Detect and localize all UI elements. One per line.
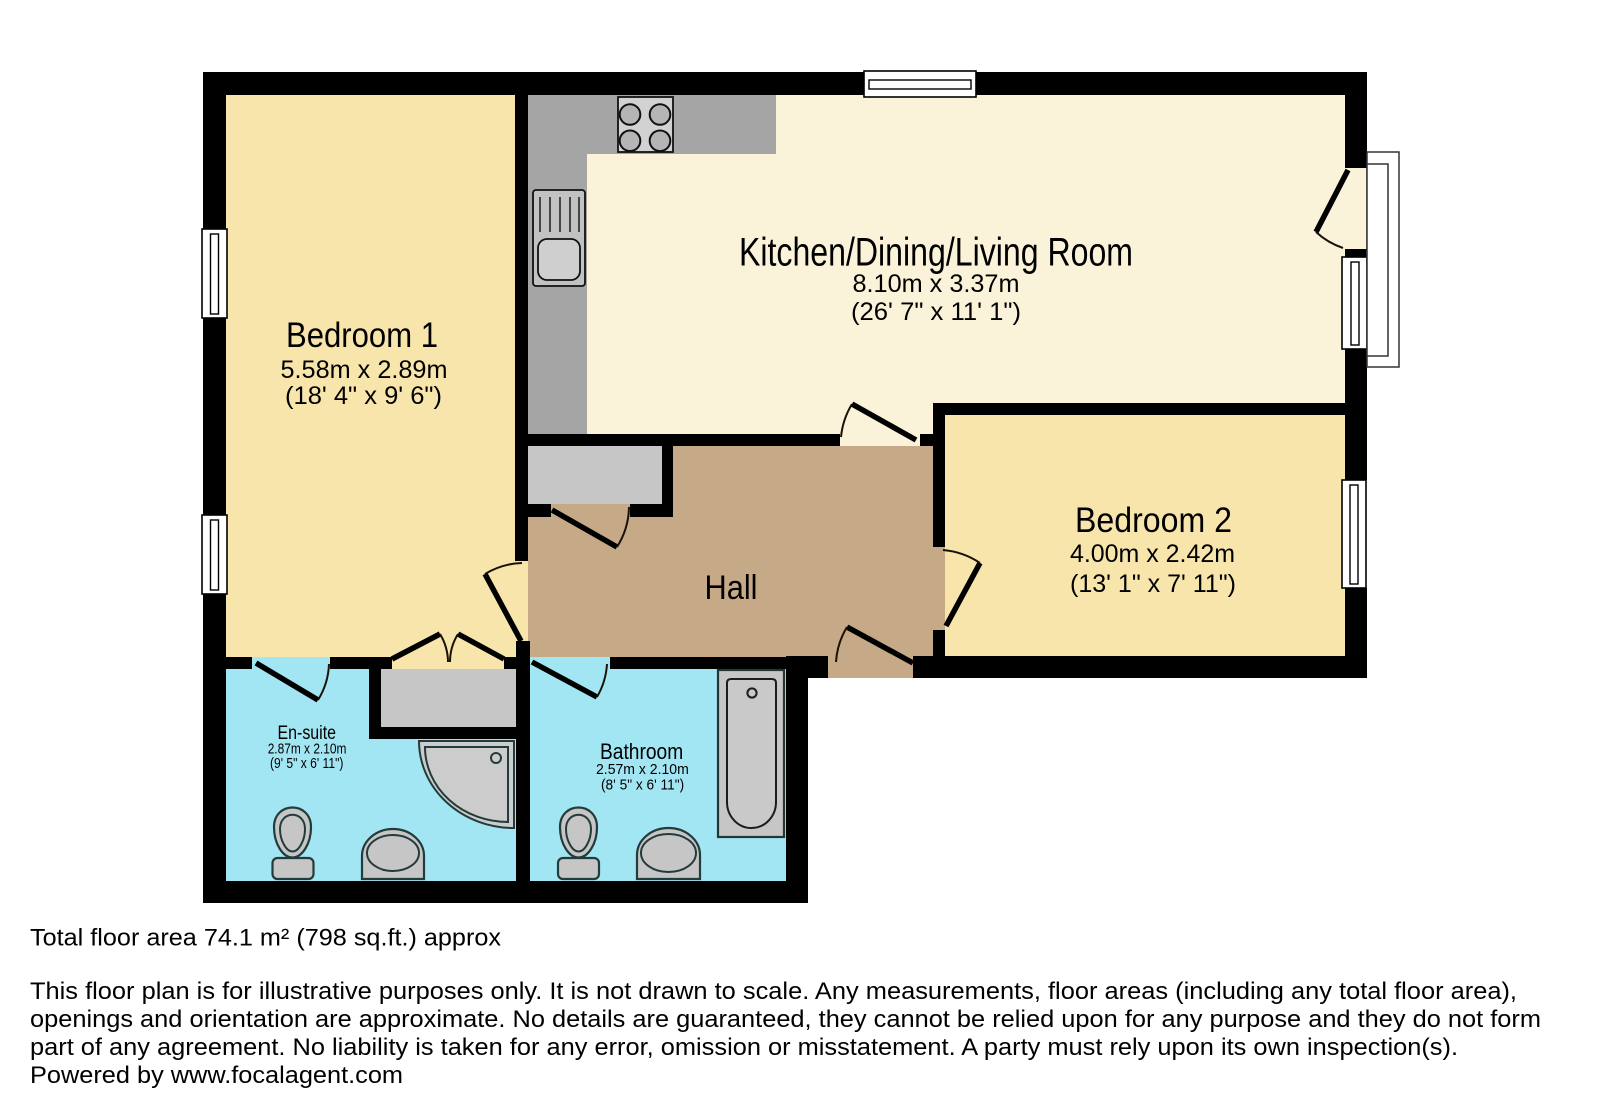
svg-text:This floor plan is for illustr: This floor plan is for illustrative purp… (30, 978, 1517, 1005)
svg-text:(26' 7" x 11' 1"): (26' 7" x 11' 1") (851, 298, 1021, 326)
svg-text:part of any agreement. No liab: part of any agreement. No liability is t… (30, 1034, 1458, 1061)
svg-text:(13' 1" x 7' 11"): (13' 1" x 7' 11") (1070, 570, 1236, 598)
svg-text:Kitchen/Dining/Living Room: Kitchen/Dining/Living Room (739, 231, 1133, 275)
svg-text:Powered by www.focalagent.com: Powered by www.focalagent.com (30, 1062, 403, 1089)
svg-text:5.58m x 2.89m: 5.58m x 2.89m (281, 356, 448, 384)
svg-text:8.10m x 3.37m: 8.10m x 3.37m (853, 270, 1020, 298)
svg-text:4.00m x 2.42m: 4.00m x 2.42m (1070, 540, 1235, 568)
svg-text:Hall: Hall (705, 569, 758, 607)
svg-text:openings and orientation are a: openings and orientation are approximate… (30, 1006, 1541, 1033)
svg-text:(18' 4" x 9' 6"): (18' 4" x 9' 6") (285, 382, 442, 410)
svg-text:Total floor area 74.1 m² (798: Total floor area 74.1 m² (798 sq.ft.) ap… (30, 925, 501, 952)
svg-text:Bedroom 2: Bedroom 2 (1075, 501, 1232, 540)
svg-text:Bedroom 1: Bedroom 1 (286, 316, 438, 355)
svg-text:2.57m x 2.10m: 2.57m x 2.10m (596, 761, 689, 778)
svg-text:(9' 5" x 6' 11"): (9' 5" x 6' 11") (270, 756, 343, 772)
svg-text:(8' 5" x 6' 11"): (8' 5" x 6' 11") (601, 777, 684, 794)
